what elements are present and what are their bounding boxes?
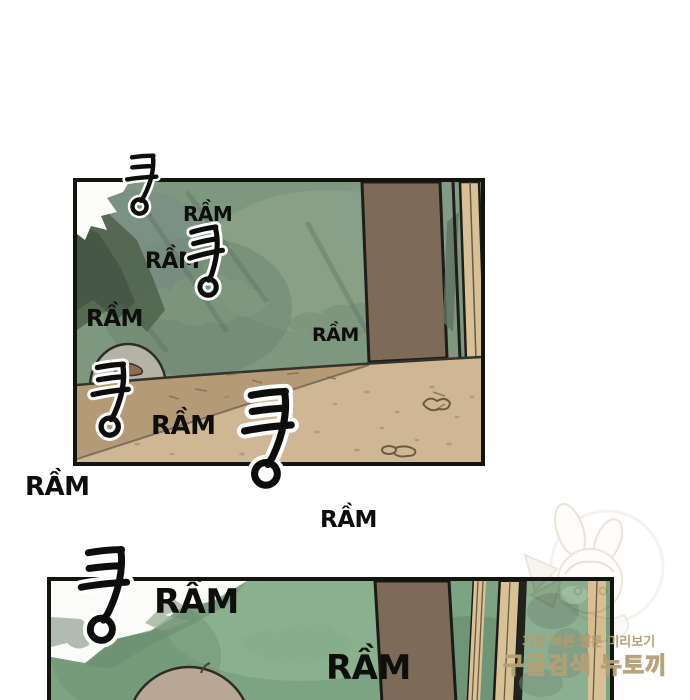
sfx-kung-5: [68, 539, 137, 646]
sfx-ram-5: RẦM: [151, 413, 216, 439]
sfx-kung-2: [182, 221, 230, 299]
sfx-kung-3: [85, 357, 136, 439]
sfx-ram-4: RẦM: [312, 326, 359, 345]
sfx-kung-1: [117, 148, 165, 217]
sfx-kung-4: [235, 382, 298, 491]
sfx-ram-8: RẦM: [154, 585, 239, 619]
sfx-ram-6: RẦM: [25, 474, 90, 500]
sfx-ram-9: RẦM: [326, 651, 411, 685]
watermark-sitename: 구글검색 뉴토끼: [503, 646, 667, 680]
sfx-ram-3: RẦM: [86, 308, 143, 331]
tree-trunk: [362, 182, 447, 362]
sfx-ram-7: RẦM: [320, 509, 377, 532]
webtoon-page: 가장 빠른 웹툰 미리보기 구글검색 뉴토끼 RẦM RẦM RẦM RẦM R…: [0, 0, 690, 700]
